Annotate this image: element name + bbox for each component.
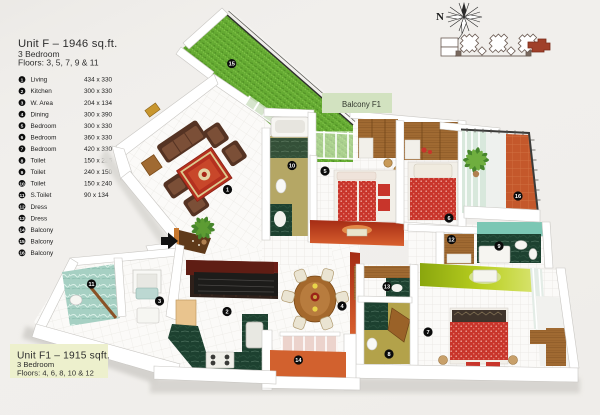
svg-text:10: 10	[289, 164, 295, 170]
svg-text:Dress: Dress	[31, 204, 48, 211]
svg-text:360 x 330: 360 x 330	[84, 134, 113, 141]
svg-text:6: 6	[447, 216, 450, 222]
svg-text:300 x 390: 300 x 390	[84, 111, 113, 118]
svg-text:13: 13	[19, 216, 25, 222]
svg-text:1: 1	[21, 77, 24, 83]
svg-text:3: 3	[158, 299, 161, 305]
svg-text:Floors: 3, 5, 7, 9 & 11: Floors: 3, 5, 7, 9 & 11	[18, 58, 99, 68]
svg-text:300 x 330: 300 x 330	[84, 88, 113, 95]
svg-text:204 x 134: 204 x 134	[84, 100, 113, 107]
svg-text:Dress: Dress	[31, 215, 48, 222]
svg-text:Toilet: Toilet	[31, 169, 46, 176]
svg-text:3: 3	[21, 101, 24, 107]
svg-text:Living: Living	[31, 77, 48, 84]
svg-text:14: 14	[19, 228, 25, 234]
svg-text:Bedroom: Bedroom	[31, 146, 57, 153]
svg-text:2: 2	[21, 89, 24, 95]
svg-text:Toilet: Toilet	[31, 158, 46, 165]
svg-text:90 x 134: 90 x 134	[84, 192, 109, 199]
svg-text:15: 15	[229, 62, 235, 68]
svg-text:Balcony: Balcony	[31, 227, 55, 234]
svg-text:150 x 240: 150 x 240	[84, 181, 113, 188]
svg-text:Balcony F1: Balcony F1	[342, 100, 381, 109]
svg-text:300 x 330: 300 x 330	[84, 123, 113, 130]
svg-text:10: 10	[19, 181, 25, 187]
svg-text:W. Area: W. Area	[31, 100, 54, 107]
svg-text:Kitchen: Kitchen	[31, 88, 53, 95]
svg-text:434 x 330: 434 x 330	[84, 77, 113, 84]
svg-text:1: 1	[226, 188, 229, 194]
svg-text:5: 5	[323, 169, 326, 175]
svg-text:16: 16	[515, 194, 521, 200]
svg-text:8: 8	[21, 158, 24, 164]
svg-text:9: 9	[21, 170, 24, 176]
svg-text:Floors: 4, 6, 8, 10 & 12: Floors: 4, 6, 8, 10 & 12	[17, 369, 94, 378]
svg-text:Bedroom: Bedroom	[31, 134, 57, 141]
svg-text:13: 13	[384, 285, 390, 291]
svg-text:2: 2	[225, 310, 228, 316]
svg-text:14: 14	[295, 358, 302, 364]
svg-text:Toilet: Toilet	[31, 181, 46, 188]
svg-text:11: 11	[89, 282, 95, 288]
svg-text:15: 15	[19, 239, 25, 245]
svg-text:6: 6	[21, 135, 24, 141]
svg-text:N: N	[436, 11, 444, 23]
svg-text:Dining: Dining	[31, 111, 50, 118]
svg-text:5: 5	[21, 124, 24, 130]
svg-text:7: 7	[21, 147, 24, 153]
svg-text:S.Toilet: S.Toilet	[31, 192, 52, 199]
svg-text:240 x 150: 240 x 150	[84, 169, 113, 176]
svg-text:9: 9	[497, 244, 500, 250]
svg-text:Balcony: Balcony	[31, 238, 55, 245]
svg-text:8: 8	[387, 352, 390, 358]
svg-text:11: 11	[19, 193, 24, 199]
svg-text:Bedroom: Bedroom	[31, 123, 57, 130]
svg-text:16: 16	[19, 251, 25, 257]
svg-text:7: 7	[426, 330, 429, 336]
svg-text:12: 12	[19, 205, 25, 211]
svg-text:4: 4	[21, 112, 24, 118]
svg-text:12: 12	[448, 238, 454, 244]
svg-text:Balcony: Balcony	[31, 250, 55, 257]
